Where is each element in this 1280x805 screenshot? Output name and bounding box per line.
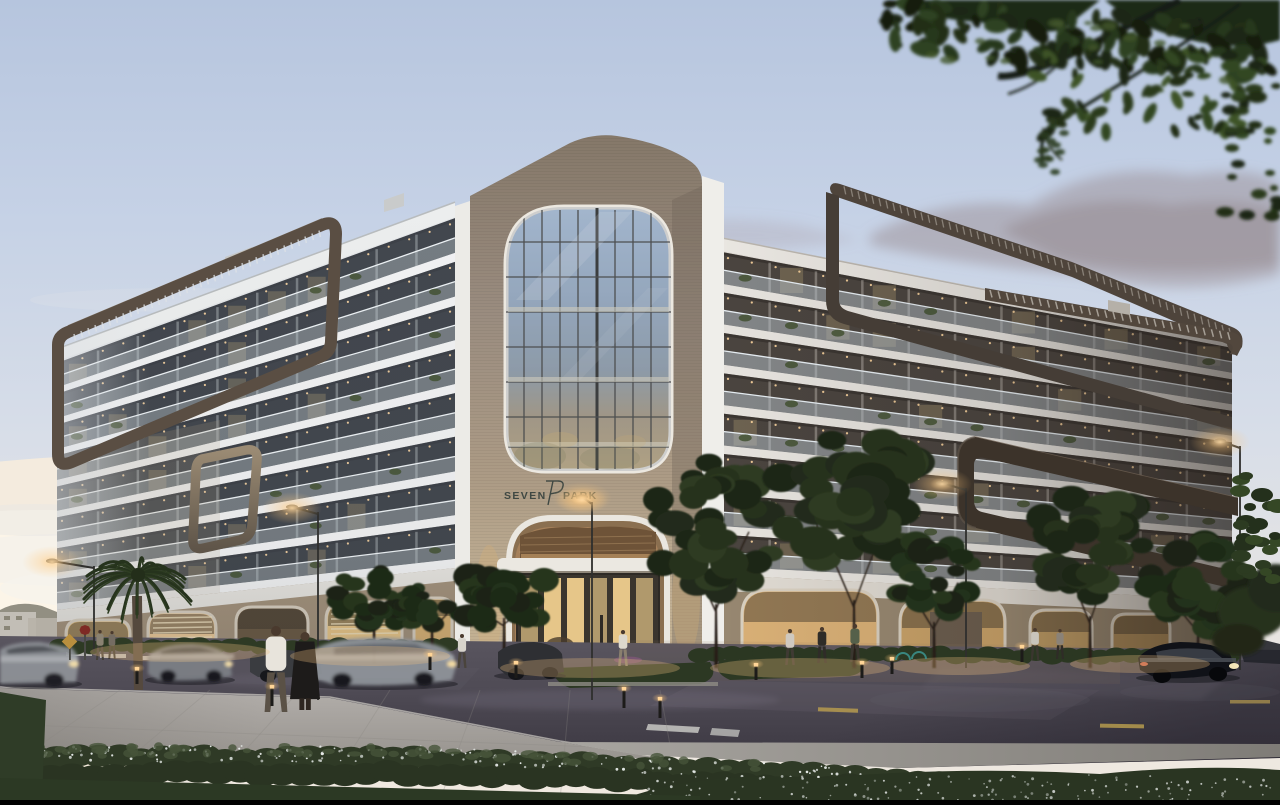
svg-text:SEVEN: SEVEN <box>504 490 547 502</box>
